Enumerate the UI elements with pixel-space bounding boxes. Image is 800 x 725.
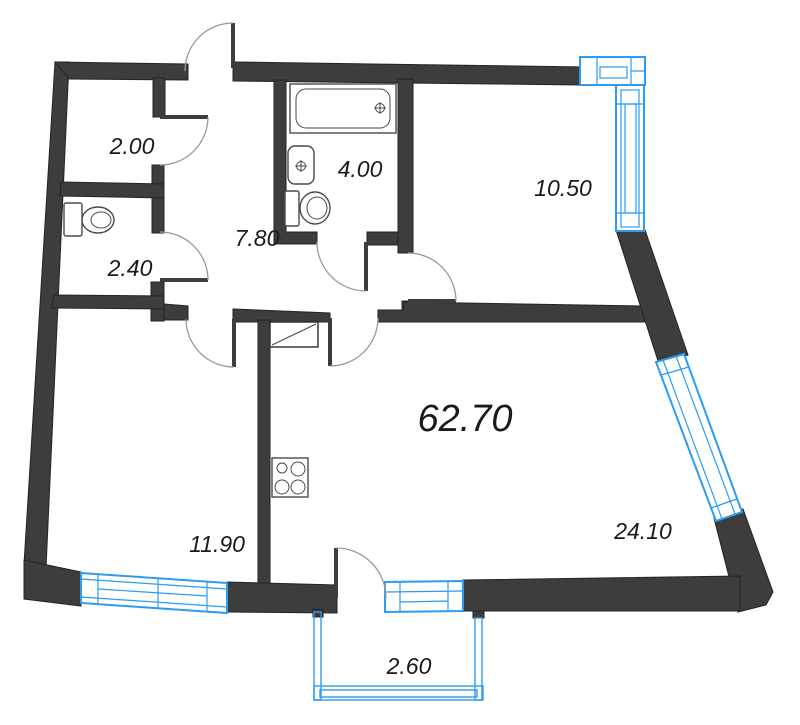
bathroom-door	[317, 242, 366, 291]
wall-storage-bottom	[60, 182, 164, 198]
wall-left	[24, 62, 69, 568]
wc-door-arc	[160, 232, 208, 280]
wall-diagonal-upper	[616, 230, 688, 364]
room-door	[186, 319, 234, 367]
wall-living-top	[378, 302, 646, 322]
window-balcony	[385, 581, 463, 612]
floor-plan: 2.00 2.40 7.80 4.00 10.50 11.90 24.10 2.…	[0, 0, 800, 725]
wall-wc-bottom	[52, 295, 164, 309]
window-right	[616, 85, 644, 231]
room-label-kitchen-living: 24.10	[613, 518, 672, 544]
kitchen-door	[330, 318, 378, 366]
toilet-wc	[64, 203, 114, 236]
bedroom-door-arc	[408, 253, 456, 301]
wc-door	[160, 232, 208, 280]
entry-door-arc	[185, 23, 233, 71]
corner-window-top	[580, 57, 645, 85]
room-label-bedroom: 10.50	[534, 175, 592, 201]
window-bottom-left	[81, 573, 227, 613]
floor-plan-page: 2.00 2.40 7.80 4.00 10.50 11.90 24.10 2.…	[0, 0, 800, 725]
toilet-bathroom	[285, 191, 330, 226]
window-diagonal	[656, 354, 742, 521]
wall-bathroom-bottom-right	[367, 232, 398, 245]
cooktop	[272, 458, 308, 497]
wall-bottom-mid-segment	[227, 582, 337, 613]
room-label-hallway: 7.80	[235, 225, 280, 251]
wall-hall-bottom-right	[233, 309, 330, 322]
wash-basin	[288, 146, 314, 184]
storage-door	[160, 117, 208, 165]
wall-storage-right-upper	[153, 78, 165, 117]
room-door-arc	[186, 319, 234, 367]
room-label-storage: 2.00	[109, 133, 155, 159]
room-label-bathroom: 4.00	[338, 156, 383, 182]
wall-bottom-right-segment	[463, 576, 740, 611]
wall-top-left-segment	[55, 62, 188, 80]
room-label-room: 11.90	[189, 531, 245, 557]
bathroom-door-arc	[317, 242, 366, 291]
wall-corner-bottom-left	[24, 560, 81, 606]
entry-door	[185, 23, 233, 71]
wall-hall-bottom-left	[164, 304, 188, 320]
bathtub	[290, 84, 396, 133]
kitchen-door-arc	[330, 318, 378, 366]
total-area-label: 62.70	[417, 398, 512, 440]
storage-door-arc	[160, 117, 208, 165]
bedroom-door	[408, 253, 456, 301]
wall-room-kitchen-divider	[258, 320, 270, 584]
wall-wc-right-upper	[152, 198, 164, 233]
wall-balcony-nub-right	[473, 611, 484, 618]
wall-bathroom-bedroom	[398, 79, 413, 253]
balcony-door-arc	[336, 548, 386, 598]
vent-shaft	[270, 322, 318, 347]
room-label-wc: 2.40	[107, 255, 153, 281]
balcony-door	[336, 548, 386, 598]
room-label-balcony: 2.60	[386, 653, 432, 679]
